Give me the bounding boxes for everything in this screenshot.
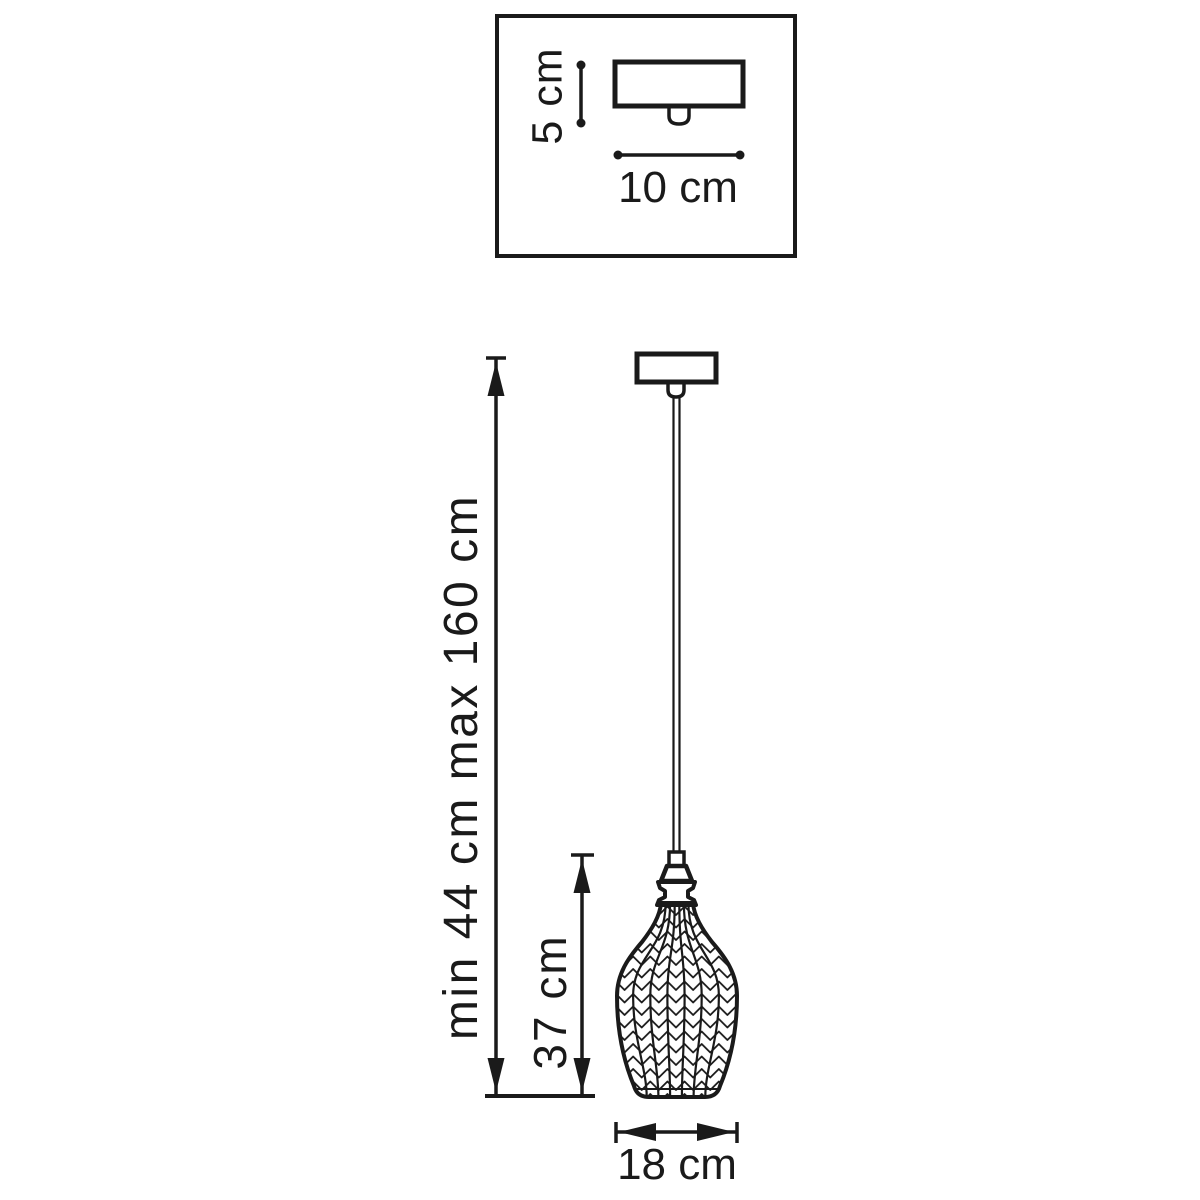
shade-diameter-label: 18 cm xyxy=(617,1143,737,1187)
arrow-left xyxy=(619,1123,656,1141)
shade-height-label: 37 cm xyxy=(527,934,573,1069)
lamp-shade xyxy=(617,903,737,1097)
dimension-dot xyxy=(577,119,586,128)
pendant-dimension-diagram: { "page": { "background": "#ffffff", "li… xyxy=(0,0,1200,1200)
pendant-canopy-plate xyxy=(637,354,716,382)
canopy-width-label: 10 cm xyxy=(618,166,738,210)
suspension-height-label: min 44 cm max 160 cm xyxy=(438,494,486,1040)
dimension-dot xyxy=(614,151,623,160)
pendant-elevation xyxy=(485,354,737,1143)
suspension-cord xyxy=(674,397,680,853)
socket-cone xyxy=(661,866,692,881)
dimension-dot xyxy=(577,61,586,70)
inset-width-dimension xyxy=(614,151,745,160)
dimension-dot xyxy=(736,151,745,160)
inset-height-dimension xyxy=(577,61,586,128)
inset-canopy-plate xyxy=(615,62,743,106)
arrow-down xyxy=(488,1058,505,1092)
arrow-right xyxy=(697,1123,734,1141)
canopy-height-label: 5 cm xyxy=(527,47,570,144)
diagram-stage: 5 cm 10 cm min 44 cm max 160 cm 37 cm 18… xyxy=(0,0,1200,1200)
diagram-linework xyxy=(0,0,1200,1200)
arrow-down xyxy=(574,1058,591,1092)
arrow-up xyxy=(488,362,505,396)
arrow-up xyxy=(574,859,591,893)
inset-canopy-stub xyxy=(669,106,689,124)
